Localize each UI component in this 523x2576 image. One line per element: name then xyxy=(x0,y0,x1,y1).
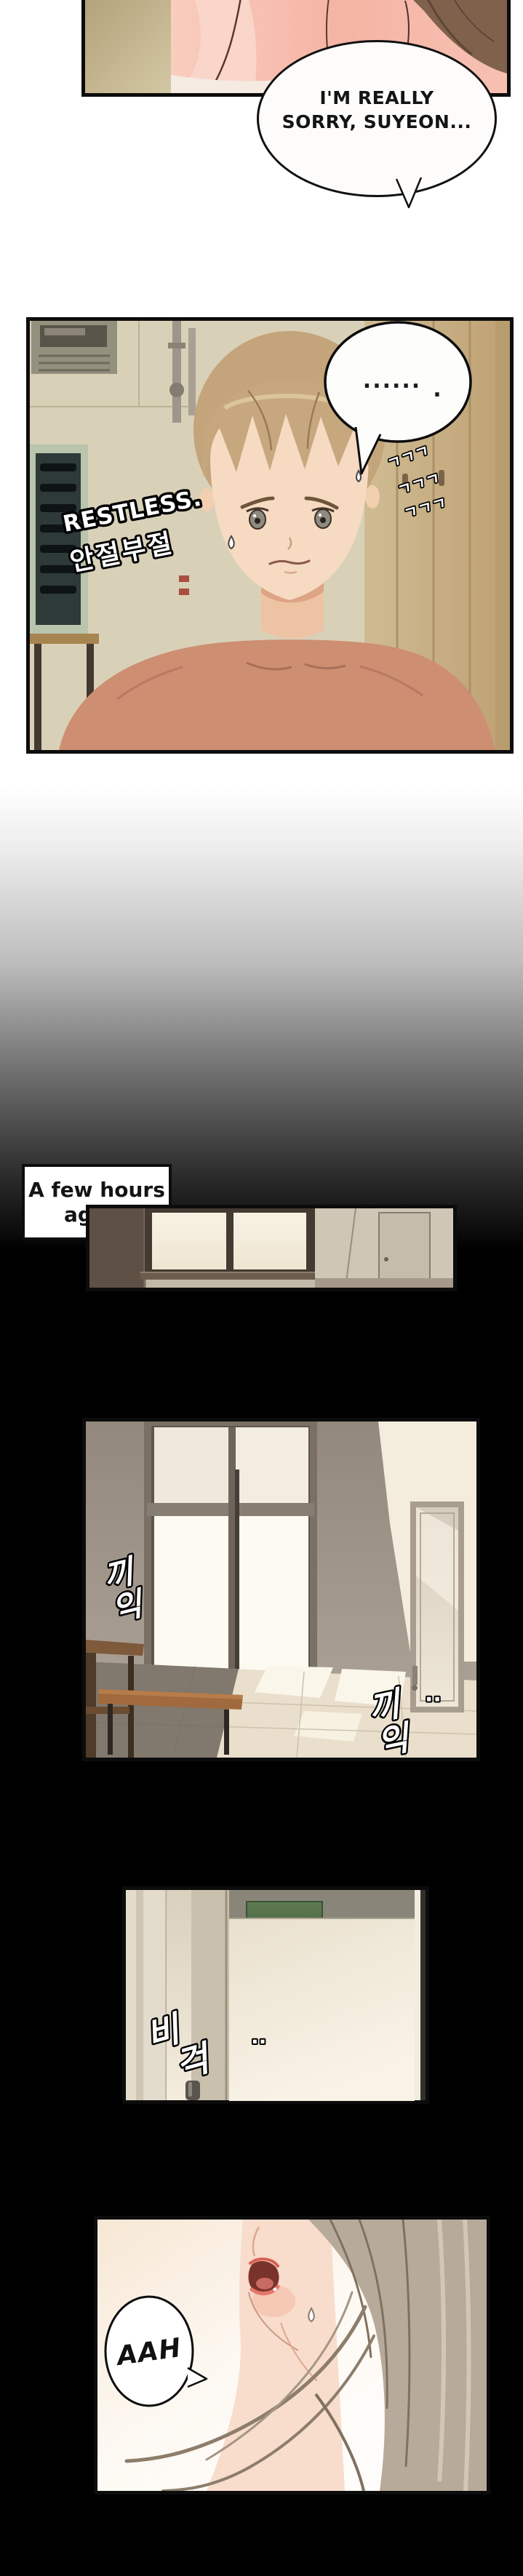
panel-2-artwork: ...... . ㄱㄱㄱ ㄱㄱㄱ ㄱㄱㄱ RESTLESS. 안절부절 xyxy=(30,321,510,750)
silence-dots-text: ...... xyxy=(363,368,421,394)
panel-5-artwork: 비 걱 ·· xyxy=(126,1890,426,2100)
panel-2-locker-room: ...... . ㄱㄱㄱ ㄱㄱㄱ ㄱㄱㄱ RESTLESS. 안절부절 xyxy=(26,317,514,754)
speech-bubble-sorry-tail xyxy=(389,175,427,211)
sfx-door-creak-char2: 걱 xyxy=(179,2037,211,2087)
caption-line-1: A few hours xyxy=(28,1178,165,1203)
room-door xyxy=(410,1502,464,1712)
panel-5-door-opening: 비 걱 ·· xyxy=(122,1886,429,2104)
sfx-creak1-char2: 익 xyxy=(115,1583,145,1630)
sfx-door-creak-dots: ·· xyxy=(251,2030,266,2054)
speech-line-2: SORRY, SUYEON... xyxy=(257,110,497,134)
large-window xyxy=(138,1421,323,1683)
panel-4-empty-room: 끼 익 끼 익 ·· xyxy=(82,1418,480,1761)
speech-bubble-sorry-text: I'M REALLY SORRY, SUYEON... xyxy=(257,86,497,134)
sfx-creak2-dots: ·· xyxy=(425,1687,442,1712)
sfx-door-creak-char1: 비 xyxy=(149,2007,181,2057)
machine-top-left xyxy=(31,321,117,374)
speech-line-1: I'M REALLY xyxy=(257,86,497,110)
sfx-creak2-char2: 익 xyxy=(379,1717,412,1764)
panel-4-artwork: 끼 익 끼 익 ·· xyxy=(86,1421,476,1758)
panel-6-woman-yawning: AAH xyxy=(94,2216,490,2495)
panel-3-artwork xyxy=(89,1208,453,1288)
panel-6-artwork: AAH xyxy=(97,2220,487,2491)
silence-period-text: . xyxy=(433,377,441,402)
webtoon-page: I'M REALLY SORRY, SUYEON... xyxy=(0,0,523,2576)
tool-cabinet-left xyxy=(30,444,88,634)
panel-3-room-strip xyxy=(86,1205,457,1291)
